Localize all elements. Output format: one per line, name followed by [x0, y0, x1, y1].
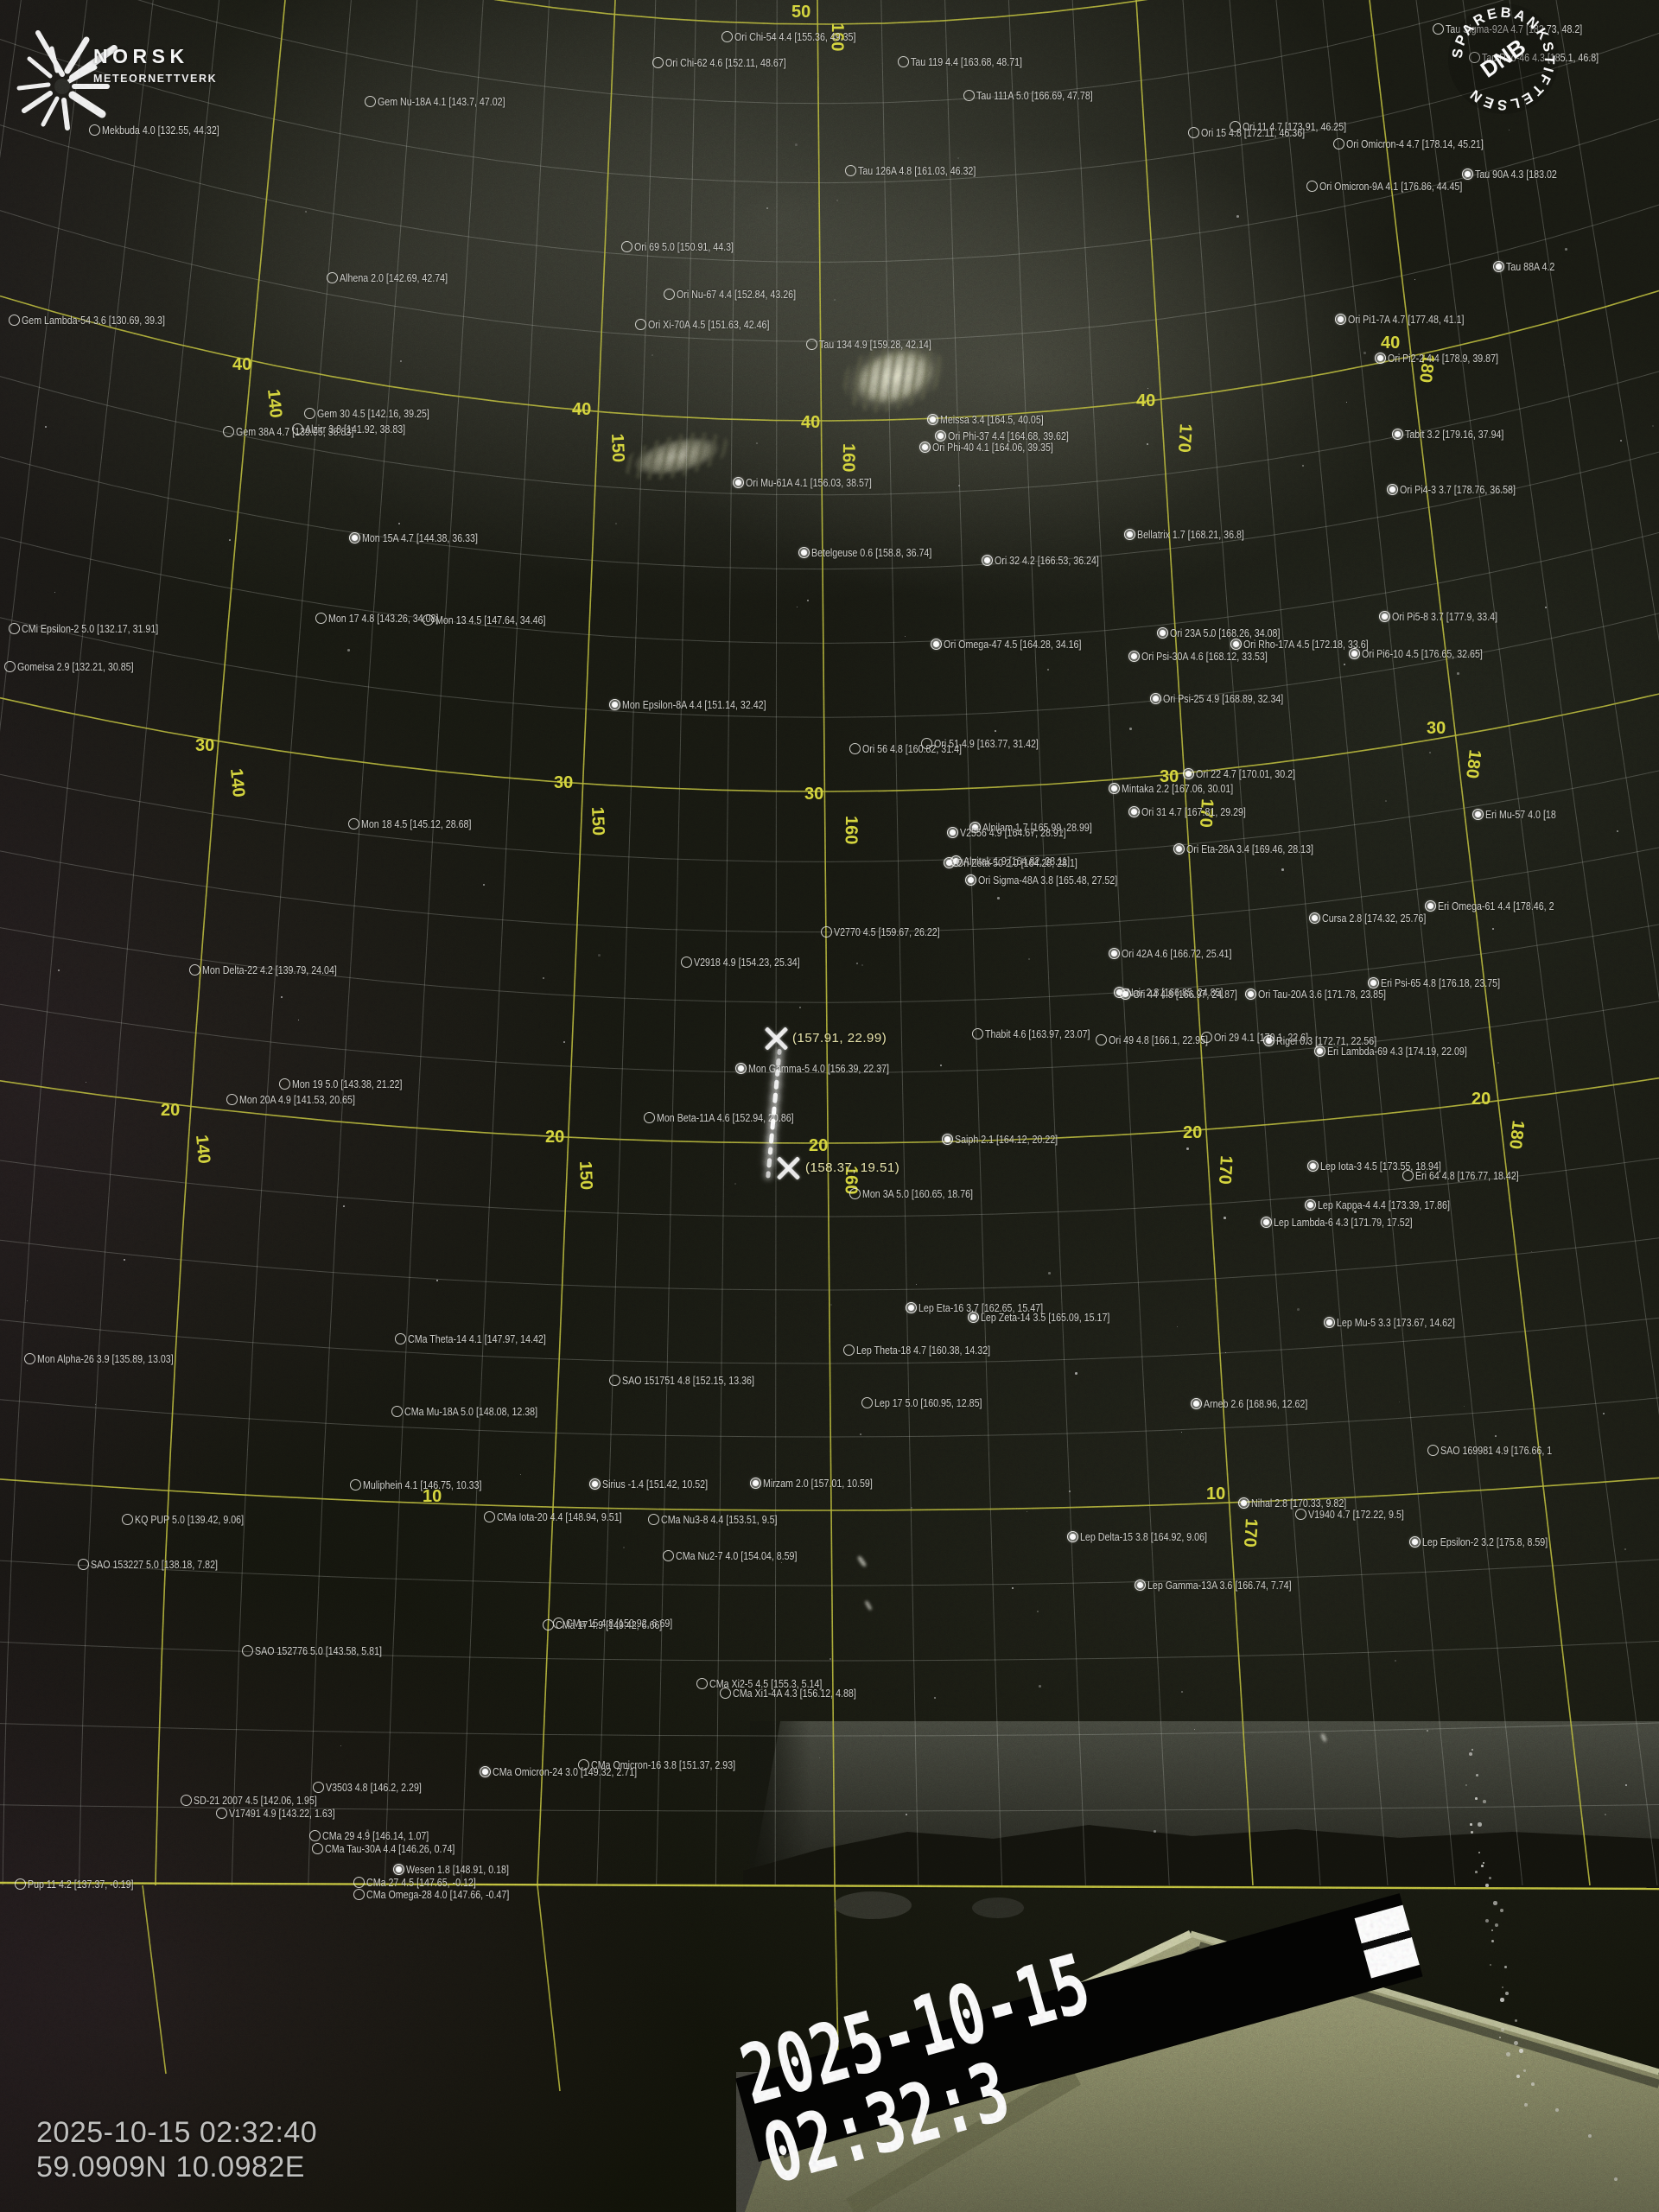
- frame-datetime: 2025-10-15 02:32:40: [36, 2115, 317, 2150]
- dirt-speckle: [1491, 1929, 1493, 1931]
- dirt-speckle: [1502, 1986, 1503, 1988]
- dirt-speckle: [1588, 2134, 1592, 2138]
- dirt-speckle: [1614, 2177, 1618, 2181]
- dirt-speckle: [1504, 1966, 1507, 1968]
- dirt-speckle: [1489, 1877, 1491, 1879]
- dirt-speckle: [1523, 2069, 1526, 2072]
- dirt-speckle: [1471, 1749, 1473, 1751]
- dirt-speckle: [1476, 1774, 1478, 1777]
- dirt-speckle: [1491, 1940, 1494, 1942]
- dirt-speckle: [1531, 2082, 1535, 2086]
- dirt-speckle: [1493, 1901, 1497, 1905]
- dirt-speckle: [1516, 2075, 1520, 2078]
- dirt-speckle: [1465, 1784, 1467, 1786]
- dirt-speckle: [1501, 2028, 1504, 2031]
- dirt-speckle: [1485, 1919, 1489, 1923]
- dirt-speckle: [1475, 1871, 1478, 1873]
- dirt-speckle: [1471, 1831, 1473, 1834]
- dirt-speckle: [1555, 2108, 1559, 2112]
- dirt-speckle: [1499, 2037, 1501, 2038]
- dirt-speckle: [1478, 1852, 1480, 1853]
- dirt-speckle: [1524, 2103, 1528, 2107]
- lens-dirt-speckles: [0, 0, 1659, 2212]
- dirt-speckle: [1483, 1862, 1484, 1864]
- dirt-speckle: [1519, 2049, 1523, 2053]
- norsk-logo-subtitle: METEORNETTVERK: [93, 73, 217, 85]
- dirt-speckle: [1481, 1865, 1484, 1867]
- norsk-meteornettverk-logo: NORSK METEORNETTVERK: [12, 14, 297, 143]
- frame-status: 2025-10-15 02:32:40 59.0909N 10.0982E: [36, 2115, 317, 2184]
- frame-position: 59.0909N 10.0982E: [36, 2150, 317, 2184]
- dirt-speckle: [1500, 1909, 1503, 1912]
- dirt-speckle: [1505, 1992, 1509, 1995]
- dirt-speckle: [1515, 2019, 1517, 2022]
- sparebankstiftelsen-dnb-logo: SPAREBANKSTIFTELSEN DNB: [1434, 0, 1659, 162]
- dirt-speckle: [1483, 1800, 1486, 1803]
- dirt-speckle: [1475, 1797, 1478, 1800]
- dirt-speckle: [1490, 1964, 1491, 1966]
- allsky-meteor-chart: 1401401401501501501601601601601701701701…: [0, 0, 1659, 2212]
- dirt-speckle: [1470, 1823, 1472, 1826]
- dirt-speckle: [1506, 2052, 1510, 2056]
- dirt-speckle: [1469, 1752, 1472, 1756]
- norsk-logo-title: NORSK: [93, 45, 189, 68]
- dirt-speckle: [1514, 2041, 1518, 2045]
- dirt-speckle: [1478, 1822, 1482, 1827]
- dirt-speckle: [1485, 1884, 1489, 1887]
- dirt-speckle: [1500, 1998, 1504, 2002]
- dirt-speckle: [1495, 1923, 1498, 1927]
